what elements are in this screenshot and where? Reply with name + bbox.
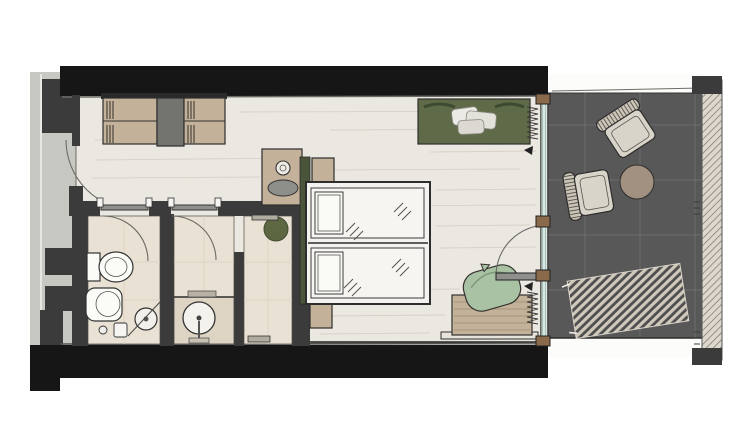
bidet bbox=[86, 288, 122, 321]
corridor-wall-bottom bbox=[40, 310, 63, 345]
corridor-jamb-upper bbox=[45, 248, 73, 275]
nightstand-top bbox=[312, 158, 334, 183]
balustrade-corner-top bbox=[692, 76, 722, 94]
balustrade-corner-bottom bbox=[692, 348, 722, 365]
terrace bbox=[548, 74, 706, 358]
top-wall bbox=[60, 66, 548, 96]
bottom-wall-extension bbox=[30, 345, 60, 391]
floor-plan-svg bbox=[0, 0, 754, 435]
pillow-top bbox=[315, 192, 343, 234]
shower-valve-top bbox=[252, 215, 278, 220]
floor-plan-page bbox=[0, 0, 754, 435]
terrace-bottom-band bbox=[548, 338, 706, 358]
wc-bin bbox=[99, 326, 107, 334]
toilet bbox=[87, 252, 133, 282]
daybed-sofa bbox=[418, 99, 530, 144]
minibar-cabinet bbox=[262, 149, 302, 205]
corridor-jamb-lower bbox=[45, 286, 73, 311]
double-bed bbox=[306, 182, 430, 304]
wc-room bbox=[86, 216, 160, 344]
rain-shower-head bbox=[264, 217, 288, 241]
mullion-mid-lower bbox=[536, 270, 550, 281]
tray bbox=[268, 180, 298, 196]
mullion-bottom bbox=[536, 336, 550, 346]
shower-valve-bottom bbox=[248, 336, 270, 342]
bath-door-leaf bbox=[172, 205, 217, 210]
nightstand-bottom bbox=[310, 303, 332, 328]
terrace-table bbox=[620, 165, 654, 199]
balustrade-hatch bbox=[702, 80, 722, 360]
wardrobe-middle-section bbox=[157, 98, 184, 146]
bottom-wall bbox=[30, 345, 548, 378]
wc-bath-partition bbox=[160, 214, 174, 346]
cup bbox=[276, 161, 290, 175]
bathroom bbox=[172, 216, 234, 344]
pillow-bottom bbox=[315, 252, 343, 294]
daybed-cushion-3 bbox=[458, 119, 485, 134]
entry-left-wall bbox=[72, 95, 80, 146]
wc-accessory-box bbox=[114, 323, 127, 337]
mullion-top bbox=[536, 94, 550, 104]
mullion-mid-upper bbox=[536, 216, 550, 227]
wc-door-leaf bbox=[101, 205, 148, 210]
shower-partition bbox=[234, 252, 244, 346]
vanity-shelf-item bbox=[188, 291, 216, 297]
shower-room bbox=[244, 215, 292, 344]
bath-left-wall bbox=[72, 214, 88, 346]
wardrobe bbox=[101, 93, 227, 146]
